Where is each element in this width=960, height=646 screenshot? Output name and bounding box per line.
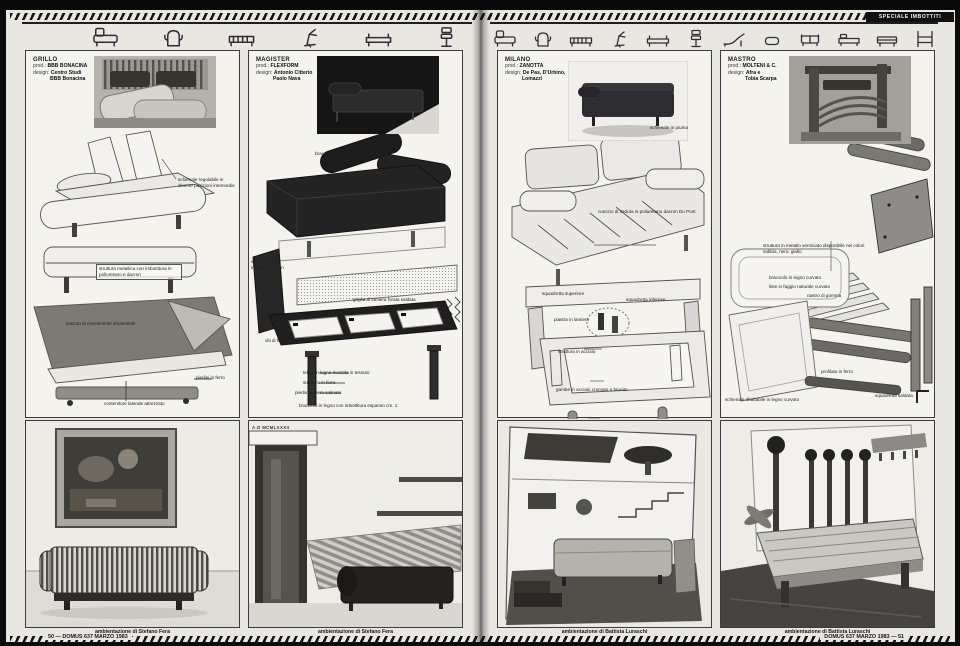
annotation-label: griglia di lamiera forata saldata bbox=[353, 297, 451, 303]
bed-frame-icon bbox=[912, 28, 938, 48]
annotation-label: schienale ribaltabile in legno curvato bbox=[725, 397, 833, 403]
designer-2: BBB Bonacina bbox=[50, 76, 85, 82]
room-panel-mastro bbox=[720, 420, 935, 628]
sofa-bed-icon bbox=[90, 25, 121, 48]
annotation-label: bracciolo in legno con imbottitura espan… bbox=[299, 403, 429, 409]
masthead-label: SPECIALE IMBOTTITI bbox=[866, 12, 954, 22]
technical-drawing bbox=[721, 129, 936, 419]
annotation-label: schienale regolabile in diverse posizion… bbox=[178, 177, 236, 189]
designer: Centro Studi bbox=[51, 70, 82, 76]
page-spine bbox=[472, 10, 490, 642]
panel-magister: MAGISTER prod.: FLEXFORM design: Antonio… bbox=[248, 50, 463, 418]
annotation-label: liste in faggio naturale curvato bbox=[769, 284, 865, 290]
hatch-border-top bbox=[10, 13, 950, 20]
annotation-label: bracciolo rotondo imbottito in piuma bbox=[315, 151, 389, 157]
designer: Afra e bbox=[746, 70, 760, 76]
annotation-label: piedini in ferro satinato bbox=[295, 390, 377, 396]
office-chair-icon bbox=[683, 28, 709, 48]
annotation-label: profilato in ferro bbox=[821, 369, 875, 375]
recliner-chair-icon bbox=[295, 25, 326, 48]
product-photo bbox=[94, 56, 216, 128]
sofa-bed-icon bbox=[492, 28, 518, 48]
daybed-icon bbox=[836, 28, 862, 48]
product-header: MAGISTER prod.: FLEXFORM design: Antonio… bbox=[256, 57, 328, 83]
annotation-label: gambe in acciaio cromato o brunito bbox=[556, 387, 660, 393]
top-rule-left bbox=[22, 22, 472, 24]
annotation-label: struttura in metallo verniciato disponib… bbox=[763, 243, 879, 255]
designer-2: Tobia Scarpa bbox=[745, 76, 777, 82]
office-chair-icon bbox=[431, 25, 462, 48]
designer: De Pas, D'Urbino, bbox=[523, 70, 566, 76]
producer: FLEXFORM bbox=[270, 63, 298, 69]
product-header: GRILLO prod.: BBB BONACINA design: Centr… bbox=[33, 57, 105, 83]
product-header: MASTRO prod.: MOLTENI & C. design: Afra … bbox=[728, 57, 800, 83]
producer: MOLTENI & C. bbox=[742, 63, 776, 69]
room-illustration bbox=[249, 421, 462, 627]
chaise-longue-icon bbox=[721, 28, 747, 48]
annotation-label: squadretta inferiore bbox=[626, 297, 680, 303]
annotation-label: struttura metallica con imbottitura in p… bbox=[96, 264, 182, 280]
bench-seat-icon bbox=[645, 28, 671, 48]
slatted-daybed-icon bbox=[568, 28, 594, 48]
magazine-spread: SPECIALE IMBOTTITI GRILLO prod.: BBB BON… bbox=[0, 0, 960, 646]
room-illustration bbox=[26, 421, 239, 627]
annotation-label: contenitore laterale attrezzato bbox=[104, 401, 224, 407]
producer: ZANOTTA bbox=[519, 63, 543, 69]
wing-armchair-icon bbox=[158, 25, 189, 48]
room-caption: ambientazione di Stefano Fera bbox=[248, 629, 463, 635]
top-rule-right bbox=[490, 22, 938, 24]
annotation-label: squadretta saldata bbox=[875, 393, 933, 399]
hatch-border-bottom bbox=[10, 636, 950, 643]
page-number-right: DOMUS 637 MARZO 1983 — 51 bbox=[820, 634, 908, 640]
annotation-label: tessuto di rivestimento sfoderabile bbox=[66, 321, 166, 327]
room-panel-grillo bbox=[25, 420, 240, 628]
annotation-label: nastro di gomma bbox=[807, 293, 861, 299]
bench-seat-icon bbox=[363, 25, 394, 48]
room-panel-milano bbox=[497, 420, 712, 628]
annotation-label: bracciolo in legno curvato bbox=[769, 275, 853, 281]
panel-milano: MILANO prod.: ZANOTTA design: De Pas, D'… bbox=[497, 50, 712, 418]
wing-armchair-icon bbox=[530, 28, 556, 48]
product-photo bbox=[789, 56, 911, 144]
two-seater-sofa-icon bbox=[797, 28, 823, 48]
room-illustration bbox=[498, 421, 711, 627]
annotation-label: cuscino di seduta in poliuretano dacron … bbox=[598, 209, 710, 215]
slatted-daybed-icon bbox=[226, 25, 257, 48]
annotation-label: piedini in ferro bbox=[196, 375, 238, 381]
panel-mastro: MASTRO prod.: MOLTENI & C. design: Afra … bbox=[720, 50, 935, 418]
designer: Antonio Citterio bbox=[274, 70, 312, 76]
product-header: MILANO prod.: ZANOTTA design: De Pas, D'… bbox=[505, 57, 577, 83]
designer-2: Lomazzi bbox=[522, 76, 542, 82]
furniture-icon-strip-right bbox=[492, 25, 938, 48]
producer: BBB BONACINA bbox=[47, 63, 87, 69]
pouf-icon bbox=[759, 28, 785, 48]
room-caption: ambientazione di Battista Luraschi bbox=[497, 629, 712, 635]
room-illustration bbox=[721, 421, 934, 627]
annotation-label: piastra in lamiera bbox=[554, 317, 604, 323]
annotation-label: squadretta superiore bbox=[542, 291, 596, 297]
annotation-label: schienale in piuma bbox=[650, 125, 708, 131]
annotation-label: schienale imbottito dacron bbox=[251, 259, 287, 271]
furniture-icon-strip-left bbox=[90, 25, 462, 48]
annotation-label: struttura in acciaio bbox=[558, 349, 612, 355]
designer-2: Paolo Nava bbox=[273, 76, 300, 82]
doorway-inscription: A.D MCMLXXXII bbox=[252, 425, 314, 430]
room-panel-magister: A.D MCMLXXXII bbox=[248, 420, 463, 628]
annotation-label: struttura in ferro bbox=[303, 380, 375, 386]
annotation-label: telaio in legno rivestito in tessuto bbox=[303, 370, 405, 376]
product-photo bbox=[317, 56, 439, 134]
scan-edge-top bbox=[0, 0, 960, 10]
recliner-chair-icon bbox=[607, 28, 633, 48]
panel-grillo: GRILLO prod.: BBB BONACINA design: Centr… bbox=[25, 50, 240, 418]
technical-drawing bbox=[498, 129, 713, 419]
annotation-label: viti di fissaggio bbox=[265, 338, 311, 344]
convertible-sofa-icon bbox=[874, 28, 900, 48]
page-number-left: 50 — DOMUS 637 MARZO 1983 bbox=[44, 634, 132, 640]
